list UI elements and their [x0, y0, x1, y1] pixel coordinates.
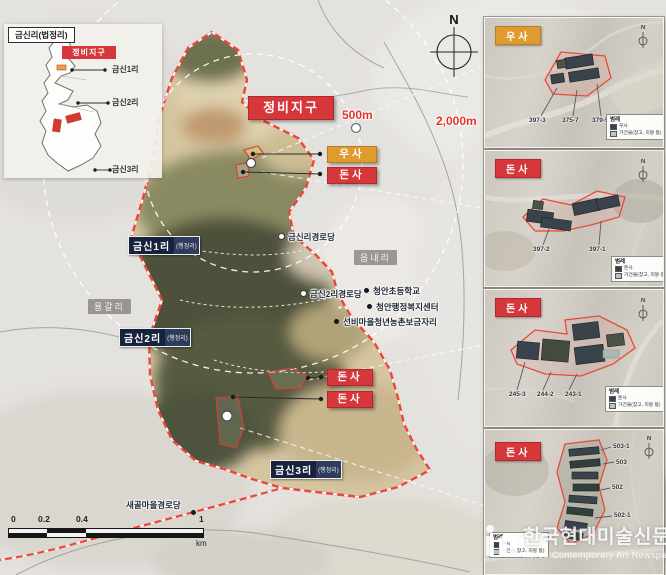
admin-label-2: 금신2리(행정리) [119, 328, 191, 347]
poi-rural-housing: 선비마을청년농촌보금자리 [343, 316, 437, 328]
watermark-subtitle: Korea Contemporary Art Newspaper [523, 550, 666, 560]
legend-title: 범례 [615, 259, 664, 265]
ring-label-2000m: 2,000m [436, 114, 477, 128]
parcel-number: 503-1 [613, 443, 630, 450]
legend-item: 가건물(창고, 지붕 등) [624, 273, 664, 278]
poi-dot [300, 290, 307, 297]
legend-title: 범례 [610, 117, 662, 123]
facility-chip-cattle: 우사 [327, 146, 377, 163]
panel-compass-icon [637, 304, 649, 322]
scale-bar-graphic [8, 528, 204, 538]
legend-item: 가건물(창고, 지붕 등) [618, 403, 661, 408]
poi-dot [364, 288, 369, 293]
parcel-number: 245-3 [509, 391, 526, 398]
panel-title: 돈사 [495, 442, 541, 461]
inset-village-1: 금신1리 [112, 64, 139, 75]
parcel-number: 397-3 [529, 117, 546, 124]
parcel-number: 375-7 [562, 117, 579, 124]
ring-label-500m: 500m [342, 108, 373, 122]
parcel-number: 397-1 [589, 246, 606, 253]
panel-legend: 범례 돈사 가건물(창고, 지붕 등) [605, 386, 664, 412]
panel-compass: N [643, 436, 655, 465]
parcel-number: 503 [616, 459, 627, 466]
compass-north-label: N [430, 12, 478, 27]
admin-label-1: 금신1리(행정리) [128, 236, 200, 255]
detail-panel-pig-2: 돈사 245-3 244-2 243-1 범례 돈사 가건물(창고, 지붕 등)… [484, 289, 664, 427]
panel-title: 우사 [495, 26, 541, 45]
parcel-number: 502-1 [614, 512, 631, 519]
parcel-number: 397-2 [533, 246, 550, 253]
scale-unit: km [196, 539, 207, 548]
legend-swatch [615, 266, 622, 272]
legend-swatch [610, 124, 617, 130]
panel-compass-icon [637, 31, 649, 49]
panel-compass: N [637, 25, 649, 54]
admin-suffix: (행정리) [165, 329, 190, 346]
parcel-number: 502 [612, 484, 623, 491]
poi-senior-center-2: 금신2리경로당 [310, 288, 362, 300]
compass: N [430, 12, 478, 78]
poi-dot [367, 304, 372, 309]
legend-swatch [615, 273, 622, 279]
poi-elementary-school: 청안초등학교 [373, 285, 420, 297]
legend-item: 돈사 [618, 396, 627, 401]
admin-name: 금신2리 [120, 329, 165, 346]
inset-title: 금신리(법정리) [8, 27, 75, 43]
scale-tick-02: 0.2 [38, 514, 50, 524]
legend-item: 돈사 [624, 266, 633, 271]
panel-compass-icon [637, 165, 649, 183]
panel-compass: N [637, 159, 649, 188]
legend-swatch [609, 403, 616, 409]
scale-tick-04: 0.4 [76, 514, 88, 524]
facility-chip-pig-3: 돈사 [327, 391, 373, 408]
inset-village-3: 금신3리 [112, 164, 139, 175]
overview-inset: 금신리(법정리) 정비지구 금신1리 금신2리 금신3리 [4, 24, 162, 178]
poi-dot [334, 319, 339, 324]
watermark-title: 한국현대미술신문 [523, 520, 666, 549]
panel-compass-icon [643, 442, 655, 460]
admin-suffix: (행정리) [174, 237, 199, 254]
admin-name: 금신1리 [129, 237, 174, 254]
inset-district-chip: 정비지구 [62, 46, 116, 59]
poi-senior-center-1: 금신리경로당 [288, 231, 335, 243]
panel-title: 돈사 [495, 159, 541, 178]
poi-saegol-senior-center: 새골마을경로당 [126, 499, 181, 511]
inset-village-2: 금신2리 [112, 97, 139, 108]
poi-dot [278, 233, 285, 240]
facility-chip-pig-1: 돈사 [327, 167, 377, 184]
area-label-eumnaeri: 읍내리 [354, 250, 397, 265]
satellite-planning-map: N 금신리(법정리) 정비지구 금신1리 금신2리 금신3리 [0, 0, 666, 575]
scale-bar: 0 0.2 0.4 1 km [6, 512, 210, 550]
admin-label-3: 금신3리(행정리) [270, 460, 342, 479]
legend-item: 우사 [619, 124, 628, 129]
facility-chip-pig-2: 돈사 [327, 369, 373, 386]
legend-swatch [610, 131, 617, 137]
legend-swatch [609, 396, 616, 402]
area-label-yonggalli: 용갈리 [88, 299, 131, 314]
legend-title: 범례 [609, 389, 661, 395]
panel-title: 돈사 [495, 298, 541, 317]
scale-tick-0: 0 [11, 514, 16, 524]
detail-panel-cattle: 우사 397-3 375-7 379-5 범례 우사 가건물(창고, 지붕 등)… [484, 17, 664, 148]
legend-item: 가건물(창고, 지붕 등) [619, 131, 662, 136]
parcel-number: 244-2 [537, 391, 554, 398]
newspaper-watermark: 한국현대미술신문 Korea Contemporary Art Newspape… [483, 520, 663, 560]
newspaper-logo-icon [483, 520, 519, 558]
compass-rose-icon [430, 27, 478, 77]
poi-admin-welfare-center: 청안행정복지센터 [376, 301, 439, 313]
panel-legend: 범례 우사 가건물(창고, 지붕 등) [606, 114, 664, 140]
panel-compass: N [637, 298, 649, 327]
admin-name: 금신3리 [271, 461, 316, 478]
panel-legend: 범례 돈사 가건물(창고, 지붕 등) [611, 256, 664, 282]
parcel-number: 243-1 [565, 391, 582, 398]
detail-panel-pig-1: 돈사 397-2 397-1 범례 돈사 가건물(창고, 지붕 등) N [484, 150, 664, 287]
district-chip: 정비지구 [248, 96, 334, 120]
scale-tick-1: 1 [199, 514, 204, 524]
admin-suffix: (행정리) [316, 461, 341, 478]
